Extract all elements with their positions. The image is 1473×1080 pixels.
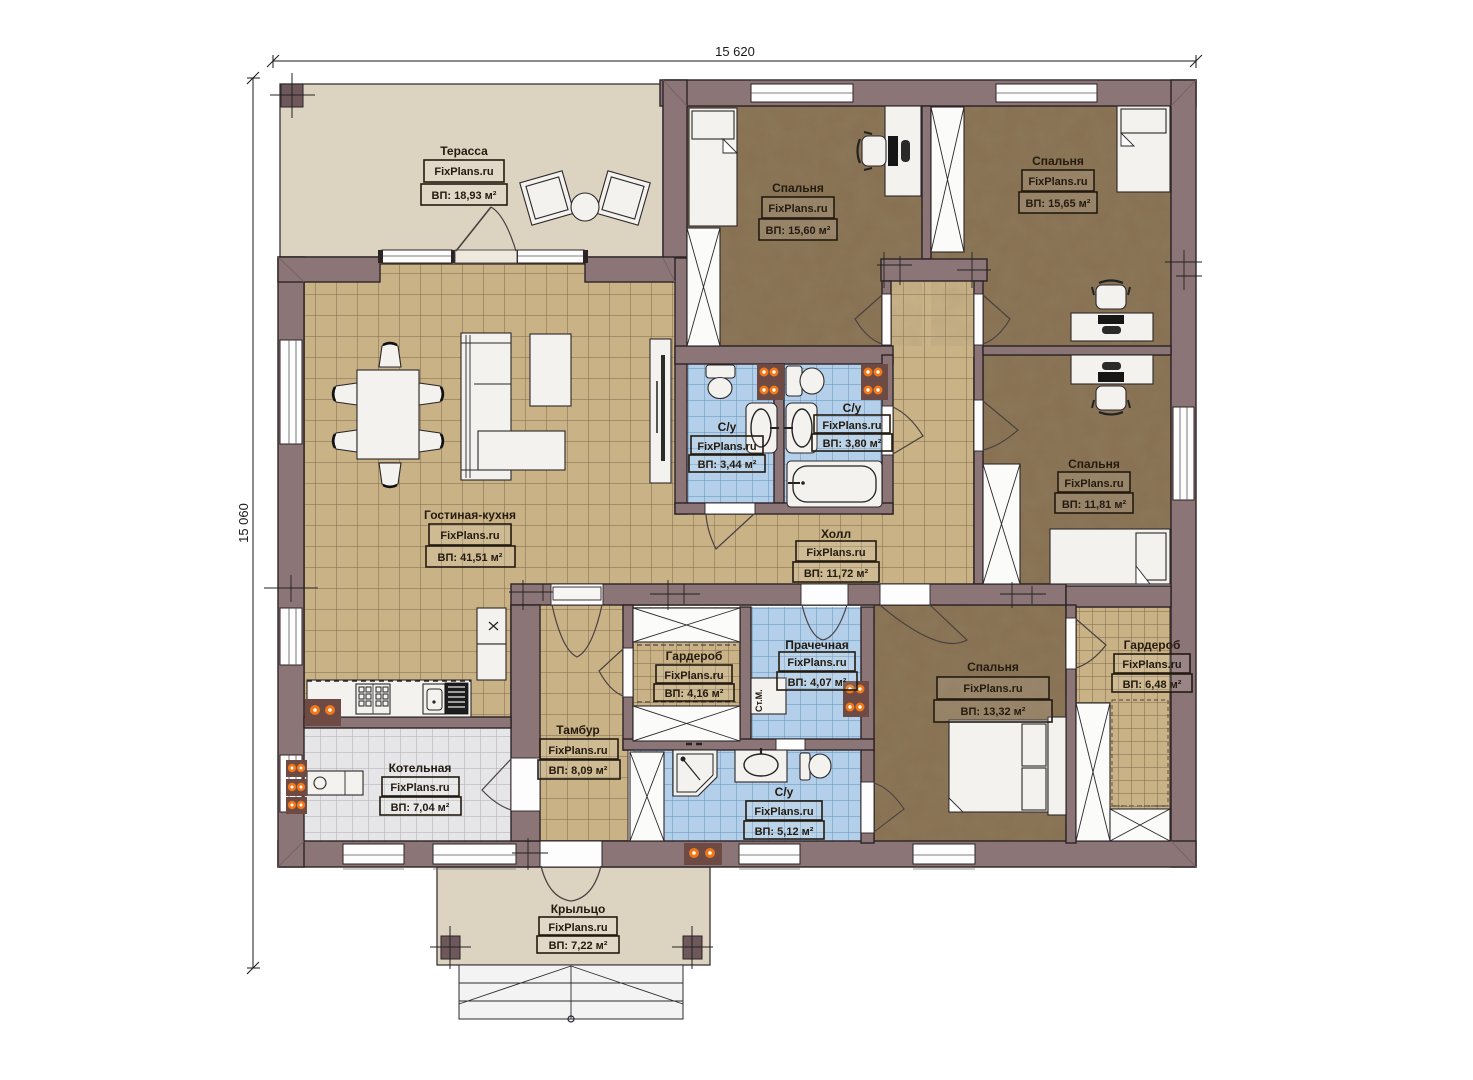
svg-text:FixPlans.ru: FixPlans.ru xyxy=(390,782,449,794)
svg-text:FixPlans.ru: FixPlans.ru xyxy=(434,166,493,178)
svg-text:FixPlans.ru: FixPlans.ru xyxy=(697,441,756,453)
svg-text:Гостиная-кухня: Гостиная-кухня xyxy=(424,508,516,522)
svg-text:ВП: 7,04 м²: ВП: 7,04 м² xyxy=(391,802,450,814)
svg-text:Гардероб: Гардероб xyxy=(1124,638,1181,652)
svg-text:Спальня: Спальня xyxy=(967,660,1019,674)
svg-text:ВП: 15,60 м²: ВП: 15,60 м² xyxy=(766,225,831,237)
svg-text:Гардероб: Гардероб xyxy=(666,649,723,663)
svg-text:FixPlans.ru: FixPlans.ru xyxy=(1122,659,1181,671)
svg-text:ВП: 4,16 м²: ВП: 4,16 м² xyxy=(665,688,724,700)
svg-text:15 060: 15 060 xyxy=(236,503,251,543)
svg-text:ВП: 6,48 м²: ВП: 6,48 м² xyxy=(1123,679,1182,691)
svg-text:ВП: 13,32 м²: ВП: 13,32 м² xyxy=(961,706,1026,718)
svg-text:ВП: 3,80 м²: ВП: 3,80 м² xyxy=(823,438,882,450)
svg-text:ВП: 11,81 м²: ВП: 11,81 м² xyxy=(1062,499,1127,511)
svg-text:FixPlans.ru: FixPlans.ru xyxy=(1028,176,1087,188)
svg-text:ВП: 18,93 м²: ВП: 18,93 м² xyxy=(432,190,497,202)
svg-text:FixPlans.ru: FixPlans.ru xyxy=(754,806,813,818)
svg-text:Тамбур: Тамбур xyxy=(556,723,600,737)
svg-text:ВП: 5,12 м²: ВП: 5,12 м² xyxy=(755,826,814,838)
svg-text:ВП: 11,72 м²: ВП: 11,72 м² xyxy=(804,568,869,580)
svg-text:FixPlans.ru: FixPlans.ru xyxy=(664,670,723,682)
svg-text:ВП: 15,65 м²: ВП: 15,65 м² xyxy=(1026,198,1091,210)
svg-text:Прачечная: Прачечная xyxy=(785,638,849,652)
svg-text:Спальня: Спальня xyxy=(1068,457,1120,471)
svg-text:15 620: 15 620 xyxy=(715,44,755,59)
svg-text:С/у: С/у xyxy=(718,420,737,434)
svg-text:FixPlans.ru: FixPlans.ru xyxy=(548,745,607,757)
svg-text:ВП: 7,22 м²: ВП: 7,22 м² xyxy=(549,940,608,952)
svg-text:Ст.М.: Ст.М. xyxy=(754,689,764,712)
svg-text:FixPlans.ru: FixPlans.ru xyxy=(1064,478,1123,490)
svg-text:FixPlans.ru: FixPlans.ru xyxy=(548,922,607,934)
svg-text:Терасса: Терасса xyxy=(440,144,488,158)
svg-text:Котельная: Котельная xyxy=(389,761,452,775)
svg-text:FixPlans.ru: FixPlans.ru xyxy=(787,657,846,669)
svg-text:ВП: 4,07 м²: ВП: 4,07 м² xyxy=(788,677,847,689)
svg-text:Спальня: Спальня xyxy=(772,181,824,195)
svg-text:Спальня: Спальня xyxy=(1032,154,1084,168)
svg-text:С/у: С/у xyxy=(775,785,794,799)
svg-text:FixPlans.ru: FixPlans.ru xyxy=(768,203,827,215)
svg-text:FixPlans.ru: FixPlans.ru xyxy=(963,683,1022,695)
svg-text:FixPlans.ru: FixPlans.ru xyxy=(806,547,865,559)
svg-text:ВП: 8,09 м²: ВП: 8,09 м² xyxy=(549,765,608,777)
svg-text:ВП: 3,44 м²: ВП: 3,44 м² xyxy=(698,459,757,471)
svg-text:FixPlans.ru: FixPlans.ru xyxy=(822,420,881,432)
svg-text:Холл: Холл xyxy=(821,527,851,541)
svg-text:FixPlans.ru: FixPlans.ru xyxy=(440,530,499,542)
svg-text:С/у: С/у xyxy=(843,401,862,415)
svg-text:ВП: 41,51 м²: ВП: 41,51 м² xyxy=(438,552,503,564)
svg-text:Крыльцо: Крыльцо xyxy=(551,902,606,916)
